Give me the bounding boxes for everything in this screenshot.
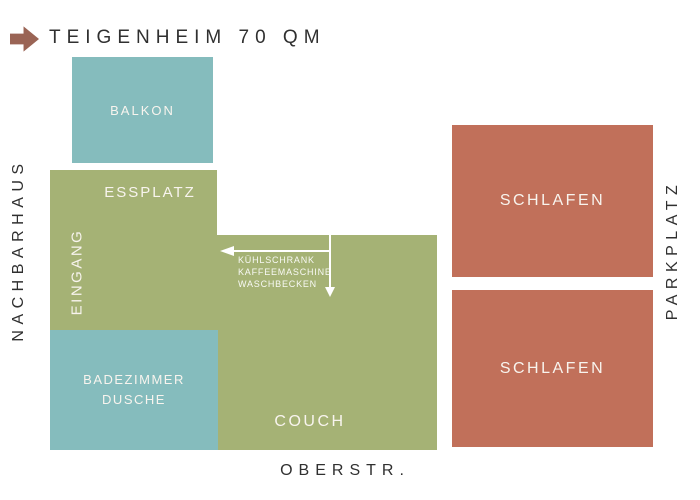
schlafen-bottom-label: SCHLAFEN: [500, 360, 605, 378]
right-arrow-icon: [10, 26, 39, 52]
eingang-label: EINGANG: [69, 229, 86, 316]
badezimmer-label: BADEZIMMER: [83, 370, 185, 390]
kitchen-annotation-line: WASCHBECKEN: [238, 278, 332, 290]
kitchen-annotation-line: KAFFEEMASCHINE: [238, 266, 332, 278]
nachbarhaus-label: NACHBARHAUS: [10, 158, 28, 341]
kitchen-annotation-line: KÜHLSCHRANK: [238, 254, 332, 266]
room-badezimmer: BADEZIMMER DUSCHE: [50, 330, 218, 450]
essplatz-label: ESSPLATZ: [85, 184, 215, 201]
plan-title: TEIGENHEIM 70 QM: [49, 27, 326, 49]
oberstr-label: OBERSTR.: [230, 462, 460, 480]
room-schlafen-top: SCHLAFEN: [452, 125, 653, 277]
dusche-label: DUSCHE: [102, 390, 166, 410]
couch-label: COUCH: [260, 413, 360, 431]
balkon-label: BALKON: [110, 103, 175, 118]
floor-plan: TEIGENHEIM 70 QM BALKON ESSPLATZ EINGANG…: [0, 0, 700, 500]
room-schlafen-bottom: SCHLAFEN: [452, 290, 653, 447]
schlafen-top-label: SCHLAFEN: [500, 192, 605, 210]
parkplatz-label: PARKPLATZ: [664, 180, 682, 320]
room-balkon: BALKON: [72, 57, 213, 163]
kitchen-annotation: KÜHLSCHRANK KAFFEEMASCHINE WASCHBECKEN: [238, 254, 332, 290]
